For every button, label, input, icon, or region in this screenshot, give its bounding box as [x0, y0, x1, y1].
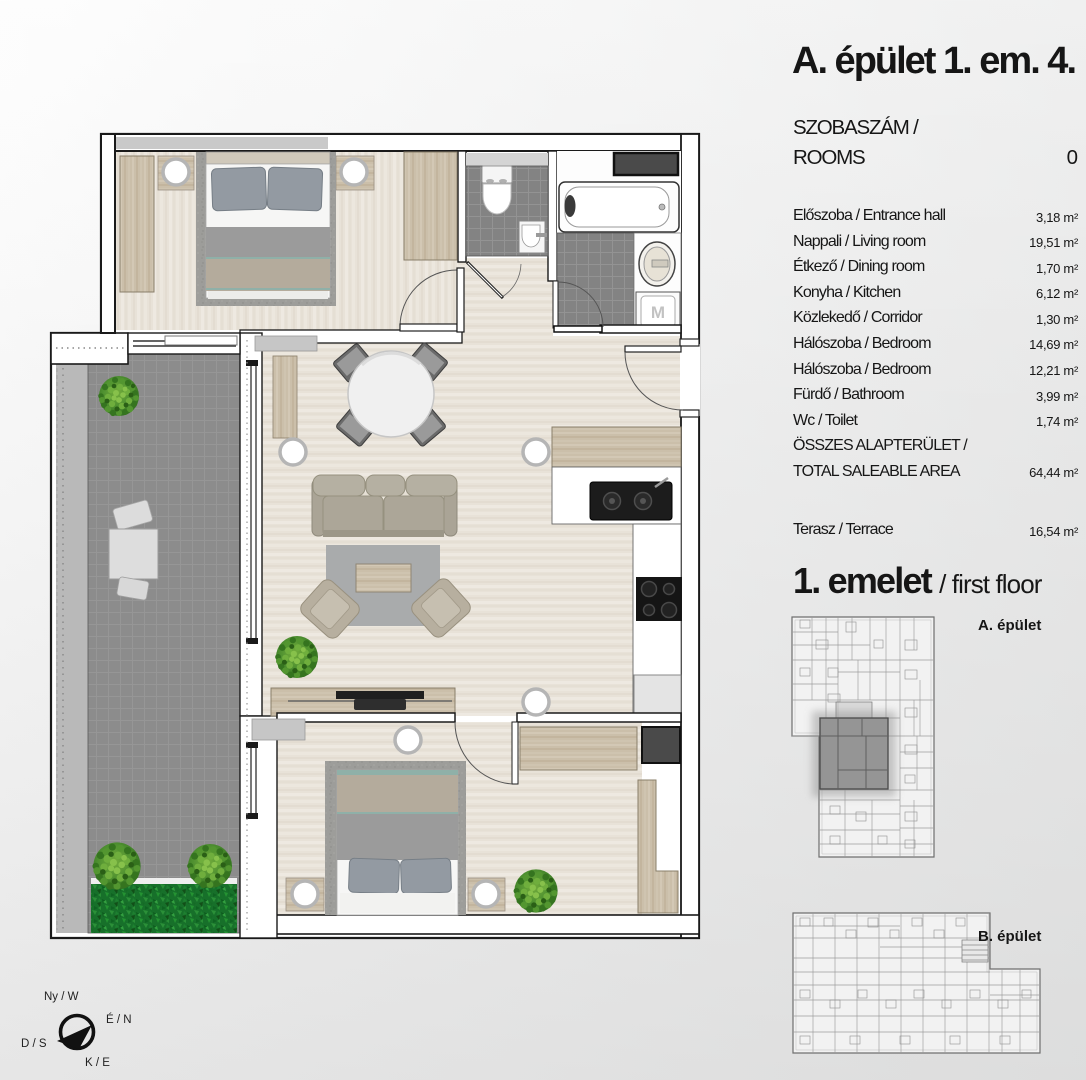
svg-text:Ny / W: Ny / W — [44, 991, 79, 1003]
svg-text:É / N: É / N — [106, 1013, 132, 1026]
svg-text:D / S: D / S — [21, 1038, 47, 1050]
svg-text:M: M — [651, 303, 665, 322]
svg-text:K / E: K / E — [85, 1057, 110, 1069]
